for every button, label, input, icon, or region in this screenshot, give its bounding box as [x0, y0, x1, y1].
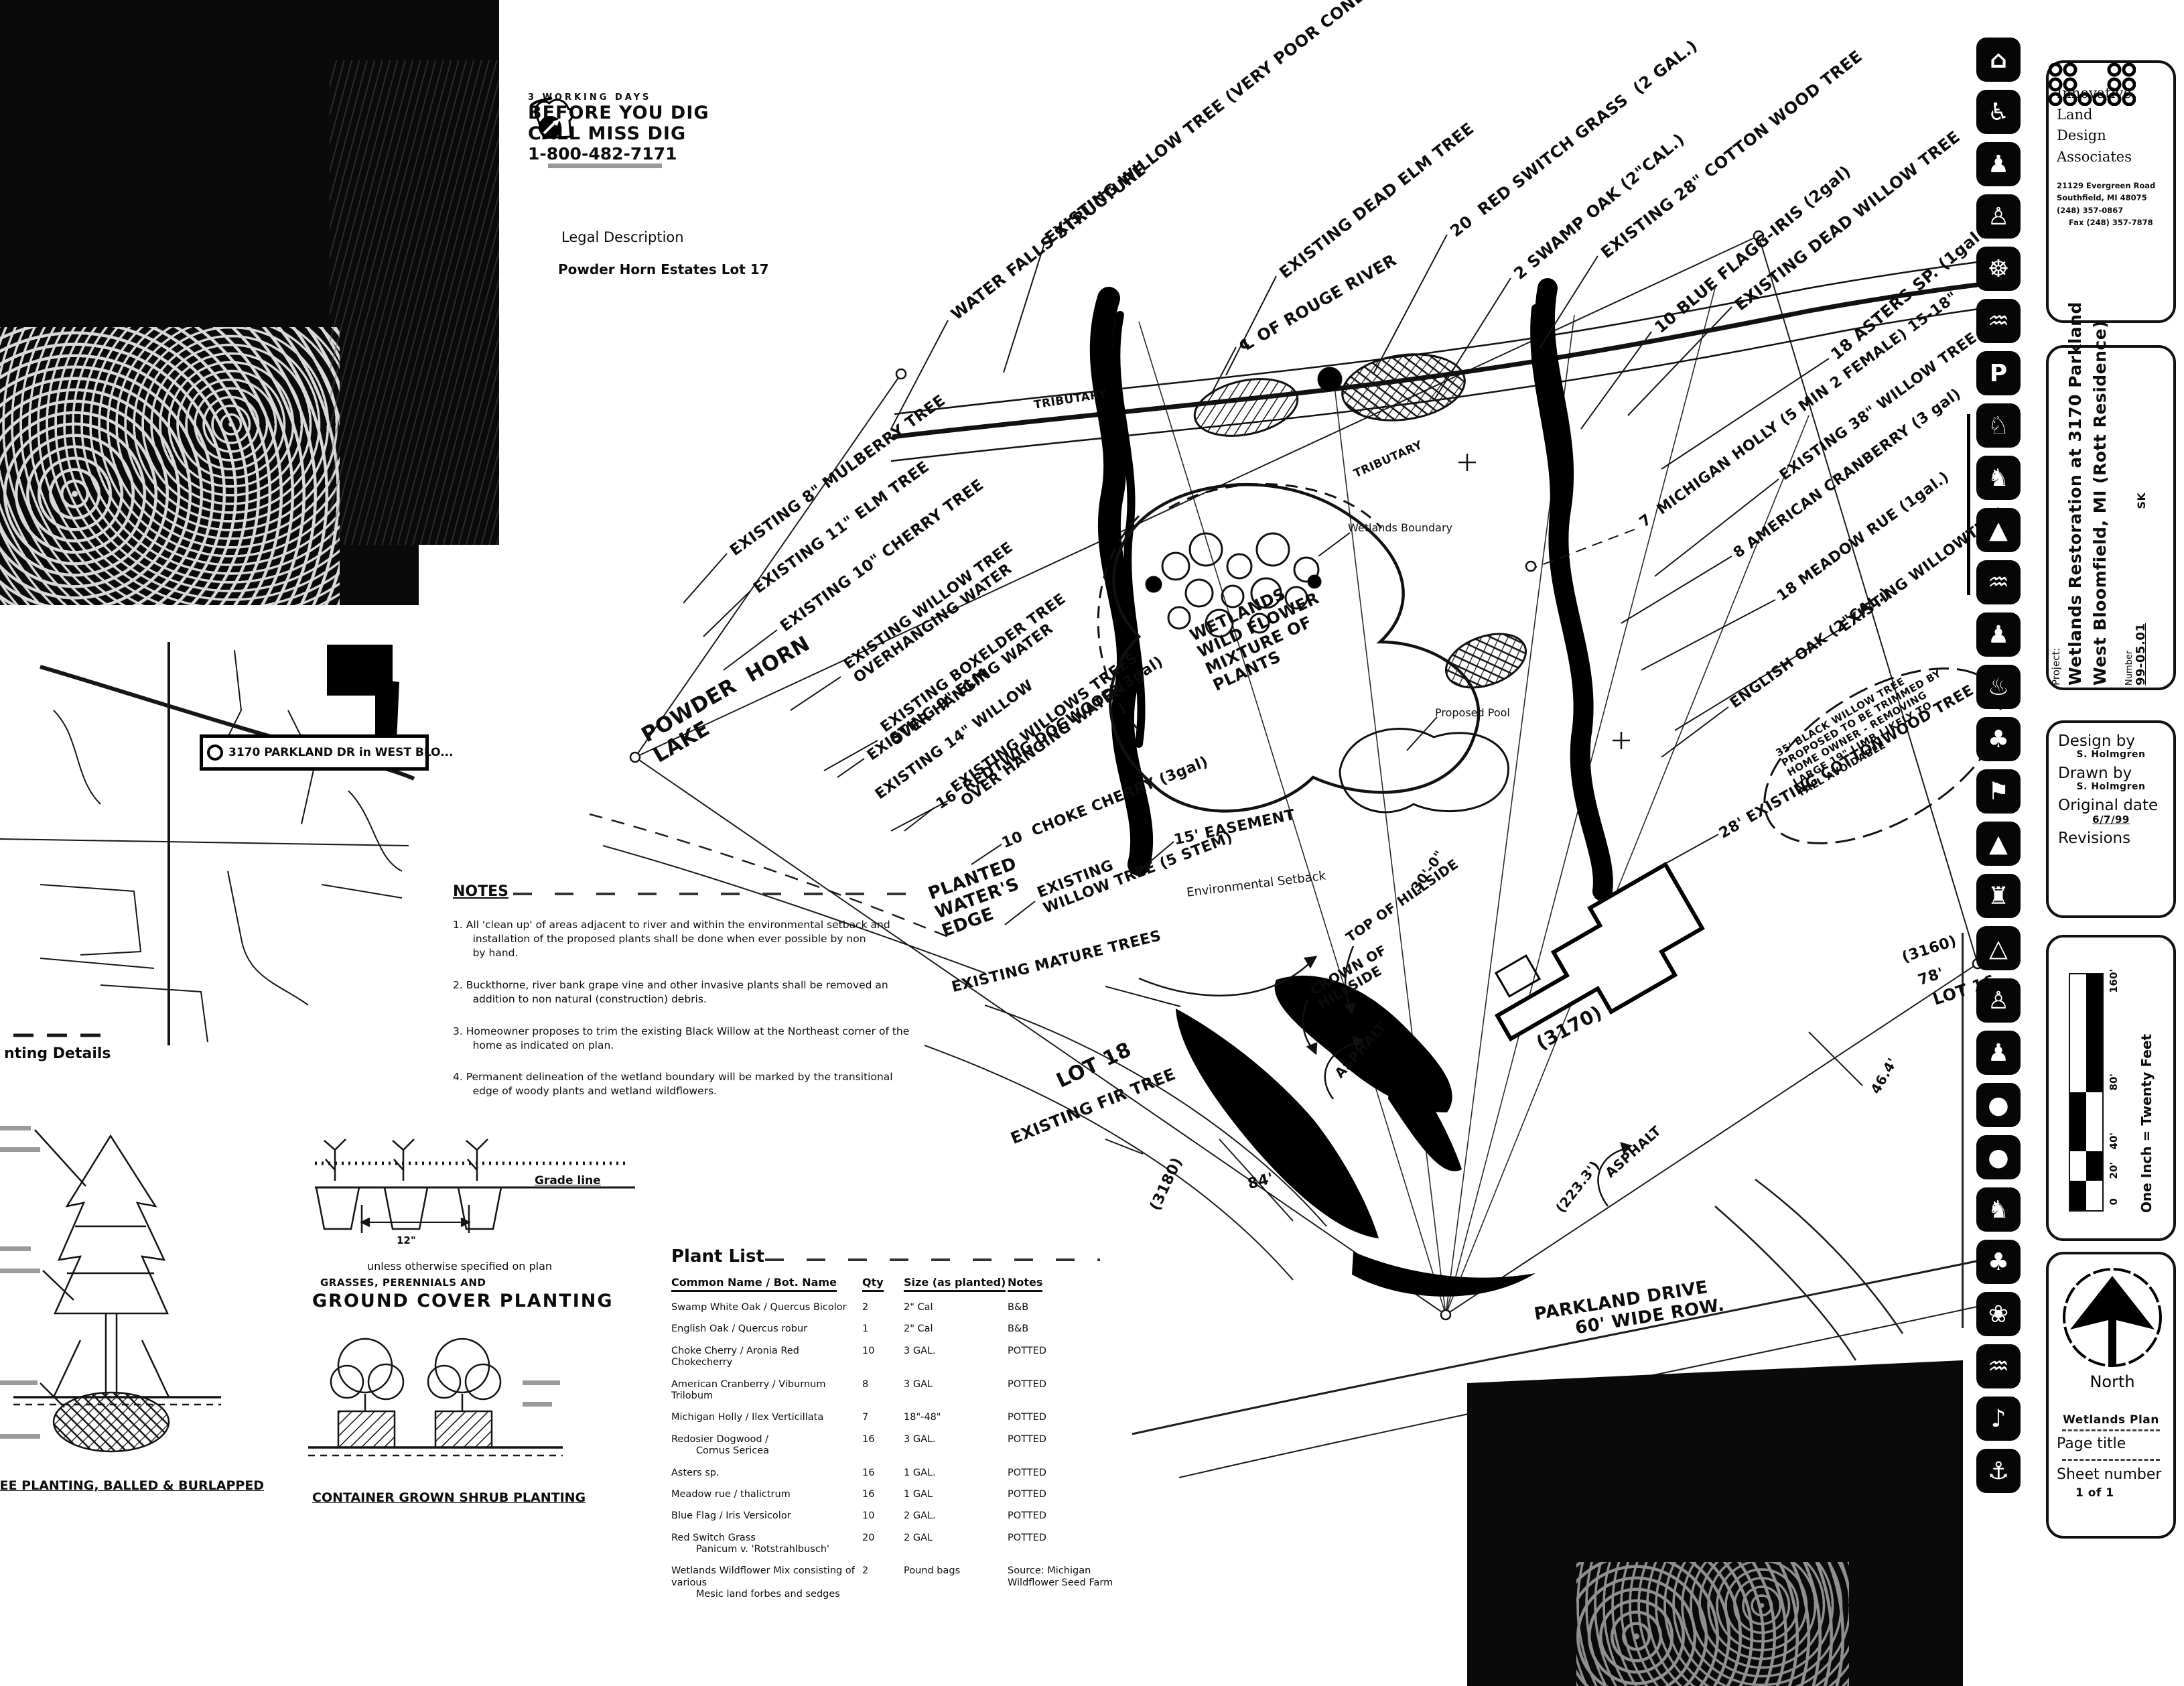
firm-addr-2: Southfield, MI 48075	[2057, 192, 2165, 204]
plant-qty: 20	[862, 1533, 904, 1544]
plant-notes: POTTED	[1008, 1412, 1113, 1423]
drawn-by-label: Drawn by	[2058, 765, 2164, 782]
legal-description-title: Legal Description	[561, 229, 684, 245]
notes-title: NOTES	[453, 883, 508, 900]
plant-size: 2 GAL	[904, 1533, 1008, 1544]
plant-size: 2" Cal	[904, 1302, 1008, 1313]
swimming-icon: ♒	[1976, 560, 2021, 604]
parking-icon: P	[1976, 351, 2021, 395]
photo-corner	[419, 545, 499, 605]
svg-text:North: North	[2090, 1372, 2134, 1391]
plan-sheet: 3 WORKING DAYS BEFORE YOU DIG CALL MISS …	[0, 0, 2184, 1686]
plant-qty: 2	[862, 1302, 904, 1313]
plant-size: 18"-48"	[904, 1412, 1008, 1423]
plant-notes: POTTED	[1008, 1468, 1113, 1479]
container-shrub-detail	[308, 1339, 563, 1455]
table-row: American Cranberry / Viburnum Trilobum 8…	[671, 1379, 1113, 1403]
house-icon: ⌂	[1976, 38, 2021, 82]
trees-icon: ♣	[1976, 1240, 2021, 1284]
table-row: Blue Flag / Iris Versicolor 10 2 GAL. PO…	[671, 1510, 1113, 1522]
sheet-number-label: Sheet number	[2057, 1466, 2165, 1483]
plant-qty: 16	[862, 1468, 904, 1479]
plant-size: Pound bags	[904, 1565, 1008, 1577]
picnic-icon: ♨	[1976, 665, 2021, 709]
north-arrow-icon: North	[2057, 1264, 2168, 1391]
col-qty: Qty	[862, 1276, 884, 1292]
locator-map	[0, 642, 414, 1045]
plant-size: 2" Cal	[904, 1323, 1008, 1335]
notes-section: NOTES 1. All 'clean up' of areas adjacen…	[453, 883, 922, 1098]
tree-planting-detail	[13, 1130, 221, 1451]
plant-name: Blue Flag / Iris Versicolor	[671, 1510, 862, 1522]
authors-titleblock: Design by S. Holmgren Drawn by S. Holmgr…	[2046, 720, 2176, 918]
plan-label-proposed-pool: Proposed Pool	[1435, 706, 1510, 719]
plant-qty: 2	[862, 1565, 904, 1577]
fine-print-bar	[548, 164, 662, 168]
note-item: 2. Buckthorne, river bank grape vine and…	[453, 978, 922, 1007]
wheelchair-icon: ♿	[1976, 90, 2021, 134]
plant-notes: B&B	[1008, 1302, 1113, 1313]
waterfront-icon: ♒	[1976, 1344, 2021, 1388]
castle-icon: ♜	[1976, 874, 2021, 918]
project-line1: Wetlands Restoration at 3170 Parkland	[2066, 350, 2086, 686]
cycling-icon: ☸	[1976, 247, 2021, 291]
table-row: Meadow rue / thalictrum 16 1 GAL POTTED	[671, 1489, 1113, 1500]
plant-list-title: Plant List	[671, 1246, 764, 1267]
plant-qty: 10	[862, 1510, 904, 1522]
page-title-value: Wetlands Plan	[2057, 1414, 2165, 1427]
tennis-icon: ●	[1976, 1135, 2021, 1179]
scale-tick: 0	[2108, 1198, 2120, 1205]
table-row: English Oak / Quercus robur 1 2" Cal B&B	[671, 1323, 1113, 1335]
trail-icon: ♘	[1976, 403, 2021, 448]
michigan-map-icon	[528, 92, 580, 149]
evergreens-icon: ♣	[1976, 717, 2021, 761]
col-name: Common Name / Bot. Name	[671, 1276, 837, 1292]
sheet-number-value: 1 of 1	[2075, 1487, 2165, 1500]
camping-icon: ▲	[1976, 822, 2021, 866]
map-marker-icon	[207, 744, 223, 761]
family-icon: ♟	[1976, 142, 2021, 186]
map-address-callout: 3170 PARKLAND DR in WEST BLO...	[200, 734, 429, 771]
project-number-label: Number	[2124, 623, 2134, 686]
skating-icon: ♟	[1976, 1031, 2021, 1075]
anchor-icon: ⚓	[1976, 1449, 2021, 1493]
grade-line-label: Grade line	[535, 1174, 601, 1187]
notes-rule	[513, 893, 915, 895]
firm-addr-4: Fax (248) 357-7878	[2057, 216, 2165, 229]
table-row: Michigan Holly / Ilex Verticillata 7 18"…	[671, 1412, 1113, 1423]
ild-logo	[2049, 63, 2136, 106]
firm-name-2: Land	[2057, 105, 2165, 126]
ballfield-icon: ●	[1976, 1083, 2021, 1127]
site-photo-bottom-right	[1467, 1360, 1963, 1686]
plant-name: American Cranberry / Viburnum Trilobum	[671, 1379, 862, 1403]
park-pictogram-column: ⌂ ♿ ♟ ♙ ☸ ♒ P ♘ ♞ ▲ ♒ ♟ ♨ ♣ ⚑ ▲	[1976, 38, 2021, 1493]
firm-addr-3: (248) 357-0867	[2057, 204, 2165, 216]
drawn-by-value: S. Holmgren	[2058, 782, 2164, 793]
plant-list-header: Common Name / Bot. Name Qty Size (as pla…	[671, 1276, 1113, 1292]
planting-details-heading: nting Details	[4, 1045, 111, 1062]
plant-qty: 16	[862, 1434, 904, 1445]
design-by-label: Design by	[2058, 732, 2164, 750]
scale-tick: 20'	[2108, 1162, 2120, 1179]
golf-icon: ⚑	[1976, 769, 2021, 814]
plant-qty: 1	[862, 1323, 904, 1335]
plant-qty: 7	[862, 1412, 904, 1423]
table-row: Redosier Dogwood / Cornus Sericea 16 3 G…	[671, 1434, 1113, 1457]
scale-text: One Inch = Twenty Feet	[2138, 985, 2155, 1213]
project-line2: West Bloomfield, MI (Rott Residence)	[2091, 350, 2110, 686]
project-label: Project:	[2050, 350, 2062, 686]
note-item: 3. Homeowner proposes to trim the existi…	[453, 1025, 922, 1053]
plant-list-rule	[765, 1258, 1100, 1261]
scale-tick: 160'	[2108, 969, 2120, 993]
project-rotated-text: Project: Wetlands Restoration at 3170 Pa…	[2050, 350, 2171, 686]
plant-name: Red Switch Grass Panicum v. 'Rotstrahlbu…	[671, 1533, 862, 1556]
plant-table-body: Swamp White Oak / Quercus Bicolor 2 2" C…	[671, 1302, 1113, 1601]
design-by-value: S. Holmgren	[2058, 750, 2164, 761]
plant-notes: B&B	[1008, 1323, 1113, 1335]
plant-name: Asters sp.	[671, 1468, 862, 1479]
revisions-label: Revisions	[2058, 830, 2164, 847]
miss-dig-notice: 3 WORKING DAYS BEFORE YOU DIG CALL MISS …	[528, 92, 709, 168]
plant-size: 3 GAL.	[904, 1346, 1008, 1357]
table-row: Choke Cherry / Aronia Red Chokecherry 10…	[671, 1346, 1113, 1369]
plant-qty: 16	[862, 1489, 904, 1500]
plant-qty: 10	[862, 1346, 904, 1357]
table-row: Red Switch Grass Panicum v. 'Rotstrahlbu…	[671, 1533, 1113, 1556]
scale-tick: 80'	[2108, 1074, 2120, 1090]
dog-walk-icon: ♙	[1976, 978, 2021, 1023]
plant-notes: POTTED	[1008, 1489, 1113, 1500]
plant-qty: 8	[862, 1379, 904, 1390]
photo-flowers	[0, 327, 340, 605]
ground-cover-title: GROUND COVER PLANTING	[312, 1291, 614, 1311]
playground-icon: ▲	[1976, 508, 2021, 552]
plant-size: 3 GAL.	[904, 1434, 1008, 1445]
col-size: Size (as planted)	[904, 1276, 1006, 1292]
seesaw-icon: △	[1976, 926, 2021, 970]
firm-titleblock: Innovative Land Design Associates 21129 …	[2046, 60, 2176, 323]
hiking-icon: ♟	[1976, 612, 2021, 657]
original-date-value: 6/7/99	[2058, 814, 2164, 826]
plant-notes: Source: Michigan Wildflower Seed Farm	[1008, 1565, 1113, 1589]
plant-name: Meadow rue / thalictrum	[671, 1489, 862, 1500]
plant-list: Plant List Common Name / Bot. Name Qty S…	[671, 1246, 1113, 1601]
firm-name-3: Design Associates	[2057, 125, 2165, 168]
page-title-label: Page title	[2057, 1435, 2165, 1452]
plant-notes: POTTED	[1008, 1533, 1113, 1544]
ball-player-icon: ♙	[1976, 194, 2021, 239]
table-row: Swamp White Oak / Quercus Bicolor 2 2" C…	[671, 1302, 1113, 1313]
scale-bar	[2070, 974, 2102, 1210]
plant-size: 2 GAL.	[904, 1510, 1008, 1522]
table-row: Asters sp. 16 1 GAL. POTTED	[671, 1468, 1113, 1479]
col-notes: Notes	[1008, 1276, 1042, 1292]
plant-size: 1 GAL	[904, 1489, 1008, 1500]
project-number: 99-05.01	[2134, 623, 2148, 686]
grasses-note: GRASSES, PERENNIALS AND	[320, 1277, 486, 1289]
plant-name: Choke Cherry / Aronia Red Chokecherry	[671, 1346, 862, 1369]
north-page-box: North Wetlands Plan Page title Sheet num…	[2046, 1252, 2176, 1539]
photo-foliage	[1576, 1562, 1849, 1686]
legal-description-value: Powder Horn Estates Lot 17	[558, 261, 769, 277]
plant-name: Wetlands Wildflower Mix consisting of va…	[671, 1565, 862, 1600]
plant-name: Michigan Holly / Ilex Verticillata	[671, 1412, 862, 1423]
plant-name: Swamp White Oak / Quercus Bicolor	[671, 1302, 862, 1313]
scale-tick: 40'	[2108, 1132, 2120, 1149]
plant-name: Redosier Dogwood / Cornus Sericea	[671, 1434, 862, 1457]
plant-size: 1 GAL.	[904, 1468, 1008, 1479]
paddling-icon: ♒	[1976, 299, 2021, 343]
map-address-text: 3170 PARKLAND DR in WEST BLO...	[228, 746, 454, 759]
plant-size: 3 GAL	[904, 1379, 1008, 1390]
plant-notes: POTTED	[1008, 1379, 1113, 1390]
songbird-icon: ♪	[1976, 1397, 2021, 1441]
plant-notes: POTTED	[1008, 1346, 1113, 1357]
project-mark: SK	[2136, 493, 2148, 509]
plan-label-wetlands-boundary: Wetlands Boundary	[1348, 521, 1452, 534]
running-icon: ♞	[1976, 1187, 2021, 1232]
container-detail-caption: CONTAINER GROWN SHRUB PLANTING	[312, 1490, 586, 1505]
plant-notes: POTTED	[1008, 1510, 1113, 1522]
photo-branches	[330, 60, 499, 544]
tree-detail-caption: TREE PLANTING, BALLED & BURLAPPED	[0, 1478, 264, 1493]
original-date-label: Original date	[2058, 797, 2164, 814]
site-photo-top-left	[0, 0, 499, 605]
note-item: 4. Permanent delineation of the wetland …	[453, 1070, 922, 1098]
plant-notes: POTTED	[1008, 1434, 1113, 1445]
firm-addr-1: 21129 Evergreen Road	[2057, 180, 2165, 192]
table-row: Wetlands Wildflower Mix consisting of va…	[671, 1565, 1113, 1600]
note-item: 1. All 'clean up' of areas adjacent to r…	[453, 918, 922, 960]
horse-riding-icon: ♞	[1976, 456, 2021, 500]
garden-icon: ❀	[1976, 1292, 2021, 1336]
spacing-dim: 12"	[397, 1234, 416, 1246]
unless-note: unless otherwise specified on plan	[367, 1260, 552, 1273]
plant-name: English Oak / Quercus robur	[671, 1323, 862, 1335]
